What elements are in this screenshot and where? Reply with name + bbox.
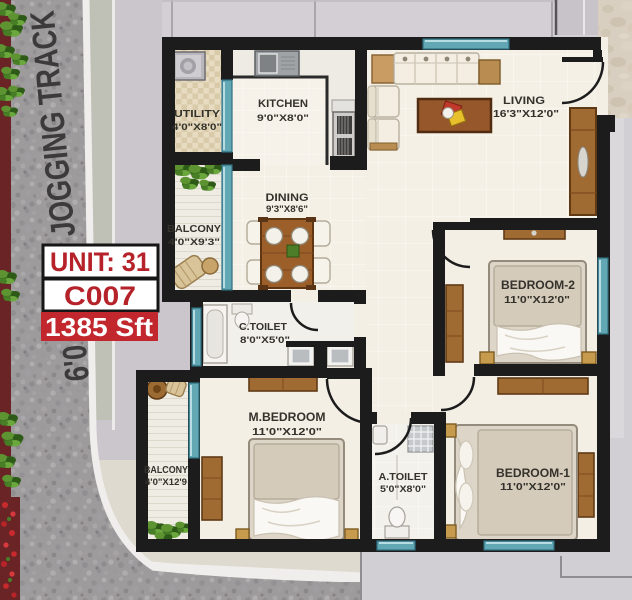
- svg-text:4'0"X8'0": 4'0"X8'0": [172, 122, 222, 133]
- svg-text:BEDROOM-1: BEDROOM-1: [496, 468, 571, 480]
- svg-text:1385 Sft: 1385 Sft: [45, 312, 153, 342]
- svg-text:A.TOILET: A.TOILET: [379, 471, 429, 483]
- svg-text:BALCONY: BALCONY: [167, 224, 221, 235]
- svg-text:8'0"X5'0": 8'0"X5'0": [240, 335, 290, 345]
- svg-text:5'0"X8'0": 5'0"X8'0": [380, 484, 426, 494]
- svg-text:11'0"X12'0": 11'0"X12'0": [500, 482, 566, 493]
- svg-text:9'3"X8'6": 9'3"X8'6": [266, 204, 308, 215]
- svg-text:M.BEDROOM: M.BEDROOM: [249, 412, 326, 424]
- svg-text:C007: C007: [64, 281, 136, 311]
- svg-text:BEDROOM-2: BEDROOM-2: [501, 280, 575, 292]
- svg-text:UTILITY: UTILITY: [174, 108, 220, 120]
- svg-text:9'0"X8'0": 9'0"X8'0": [257, 113, 309, 124]
- svg-text:KITCHEN: KITCHEN: [258, 98, 308, 110]
- svg-text:4'0"X9'3": 4'0"X9'3": [168, 237, 220, 247]
- svg-text:4'0"X12'9: 4'0"X12'9: [145, 477, 187, 487]
- svg-text:16'3"X12'0": 16'3"X12'0": [493, 109, 559, 120]
- svg-text:UNIT: 31: UNIT: 31: [50, 247, 150, 277]
- svg-text:BALCONY: BALCONY: [144, 465, 188, 476]
- svg-text:LIVING: LIVING: [503, 95, 545, 107]
- svg-text:C.TOILET: C.TOILET: [239, 322, 287, 333]
- svg-text:11'0"X12'0": 11'0"X12'0": [504, 295, 570, 306]
- svg-text:11'0"X12'0": 11'0"X12'0": [252, 427, 322, 438]
- svg-text:DINING: DINING: [266, 192, 309, 204]
